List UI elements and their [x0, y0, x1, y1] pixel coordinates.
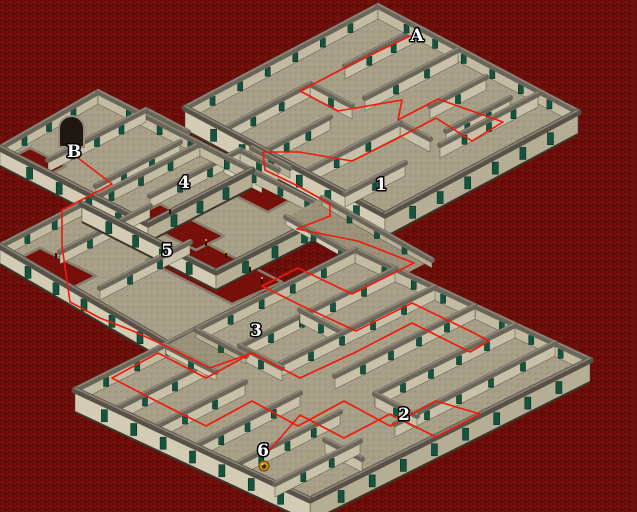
- map-label-3: 3: [250, 321, 262, 341]
- door-icon: [340, 336, 345, 345]
- door-icon: [197, 201, 203, 213]
- door-icon: [56, 182, 62, 194]
- door-icon: [348, 24, 353, 33]
- door-icon: [404, 24, 409, 33]
- door-icon: [171, 215, 177, 227]
- door-icon: [433, 39, 438, 48]
- door-icon: [511, 110, 516, 119]
- door-icon: [437, 192, 443, 204]
- door-icon: [489, 378, 494, 387]
- door-icon: [219, 436, 224, 445]
- door-icon: [245, 423, 250, 432]
- door-icon: [269, 334, 274, 343]
- door-icon: [457, 356, 462, 365]
- door-icon: [410, 206, 416, 218]
- map-label-4: 4: [178, 173, 190, 193]
- door-icon: [547, 133, 553, 145]
- door-icon: [556, 382, 562, 394]
- door-icon: [338, 490, 344, 502]
- door-icon: [238, 82, 243, 91]
- map-structures: [0, 4, 590, 512]
- door-icon: [492, 162, 498, 174]
- door-icon: [284, 143, 289, 152]
- door-icon: [425, 69, 430, 78]
- map-label-B: B: [67, 142, 81, 162]
- candle-icon: [55, 253, 57, 258]
- door-icon: [133, 235, 139, 247]
- door-icon: [309, 352, 314, 361]
- map-label-6: 6: [257, 441, 269, 461]
- door-icon: [259, 300, 264, 309]
- door-icon: [558, 349, 563, 358]
- door-icon: [25, 266, 31, 278]
- door-icon: [520, 147, 526, 159]
- door-icon: [431, 444, 437, 456]
- door-icon: [285, 442, 290, 451]
- door-icon: [319, 324, 324, 333]
- door-icon: [494, 413, 500, 425]
- door-icon: [461, 54, 466, 63]
- door-icon: [248, 479, 254, 491]
- door-icon: [243, 261, 249, 273]
- door-icon: [457, 395, 462, 404]
- door-icon: [211, 129, 217, 141]
- door-icon: [101, 410, 107, 422]
- door-icon: [223, 188, 229, 200]
- door-icon: [400, 459, 406, 471]
- candle-icon: [205, 241, 207, 246]
- door-icon: [53, 283, 59, 295]
- door-icon: [306, 131, 311, 140]
- door-icon: [331, 303, 336, 312]
- map-label-A: A: [409, 26, 424, 46]
- door-icon: [251, 117, 256, 126]
- door-icon: [490, 70, 495, 79]
- dungeon-map: AB123456: [0, 0, 637, 512]
- door-icon: [190, 451, 196, 463]
- door-icon: [394, 85, 399, 94]
- door-icon: [463, 428, 469, 440]
- door-icon: [106, 222, 112, 234]
- door-icon: [445, 323, 450, 332]
- door-icon: [329, 458, 334, 467]
- door-icon: [411, 281, 416, 290]
- candle-icon: [249, 267, 251, 272]
- door-icon: [228, 315, 233, 324]
- door-icon: [366, 142, 371, 151]
- door-icon: [525, 397, 531, 409]
- door-icon: [369, 475, 375, 487]
- door-icon: [213, 400, 218, 409]
- door-icon: [186, 262, 192, 274]
- door-icon: [456, 95, 461, 104]
- door-icon: [301, 473, 306, 482]
- door-icon: [547, 100, 552, 109]
- door-icon: [417, 337, 422, 346]
- door-icon: [272, 246, 278, 258]
- map-label-2: 2: [398, 405, 410, 425]
- door-icon: [429, 369, 434, 378]
- door-icon: [425, 411, 430, 420]
- door-icon: [321, 269, 326, 278]
- door-icon: [465, 177, 471, 189]
- door-icon: [210, 96, 215, 105]
- door-icon: [334, 159, 339, 168]
- door-icon: [143, 397, 148, 406]
- door-icon: [401, 383, 406, 392]
- door-icon: [27, 167, 33, 179]
- door-icon: [290, 284, 295, 293]
- item-marker: [259, 461, 269, 471]
- door-icon: [361, 365, 366, 374]
- dungeon-map-screen: AB123456: [0, 0, 637, 512]
- candle-icon: [169, 209, 171, 214]
- door-icon: [521, 362, 526, 371]
- door-icon: [529, 336, 534, 345]
- door-icon: [320, 38, 325, 47]
- door-icon: [104, 377, 109, 386]
- door-icon: [311, 428, 316, 437]
- candle-icon: [225, 253, 227, 258]
- door-icon: [219, 465, 225, 477]
- map-label-5: 5: [161, 241, 173, 261]
- door-icon: [441, 294, 446, 303]
- door-icon: [518, 85, 523, 94]
- door-icon: [367, 56, 372, 65]
- door-icon: [259, 360, 264, 369]
- door-icon: [293, 53, 298, 62]
- door-icon: [160, 437, 166, 449]
- door-icon: [173, 382, 178, 391]
- door-icon: [389, 351, 394, 360]
- candle-icon: [261, 279, 263, 284]
- door-icon: [279, 102, 284, 111]
- map-label-1: 1: [375, 175, 387, 195]
- door-icon: [265, 67, 270, 76]
- door-icon: [131, 424, 137, 436]
